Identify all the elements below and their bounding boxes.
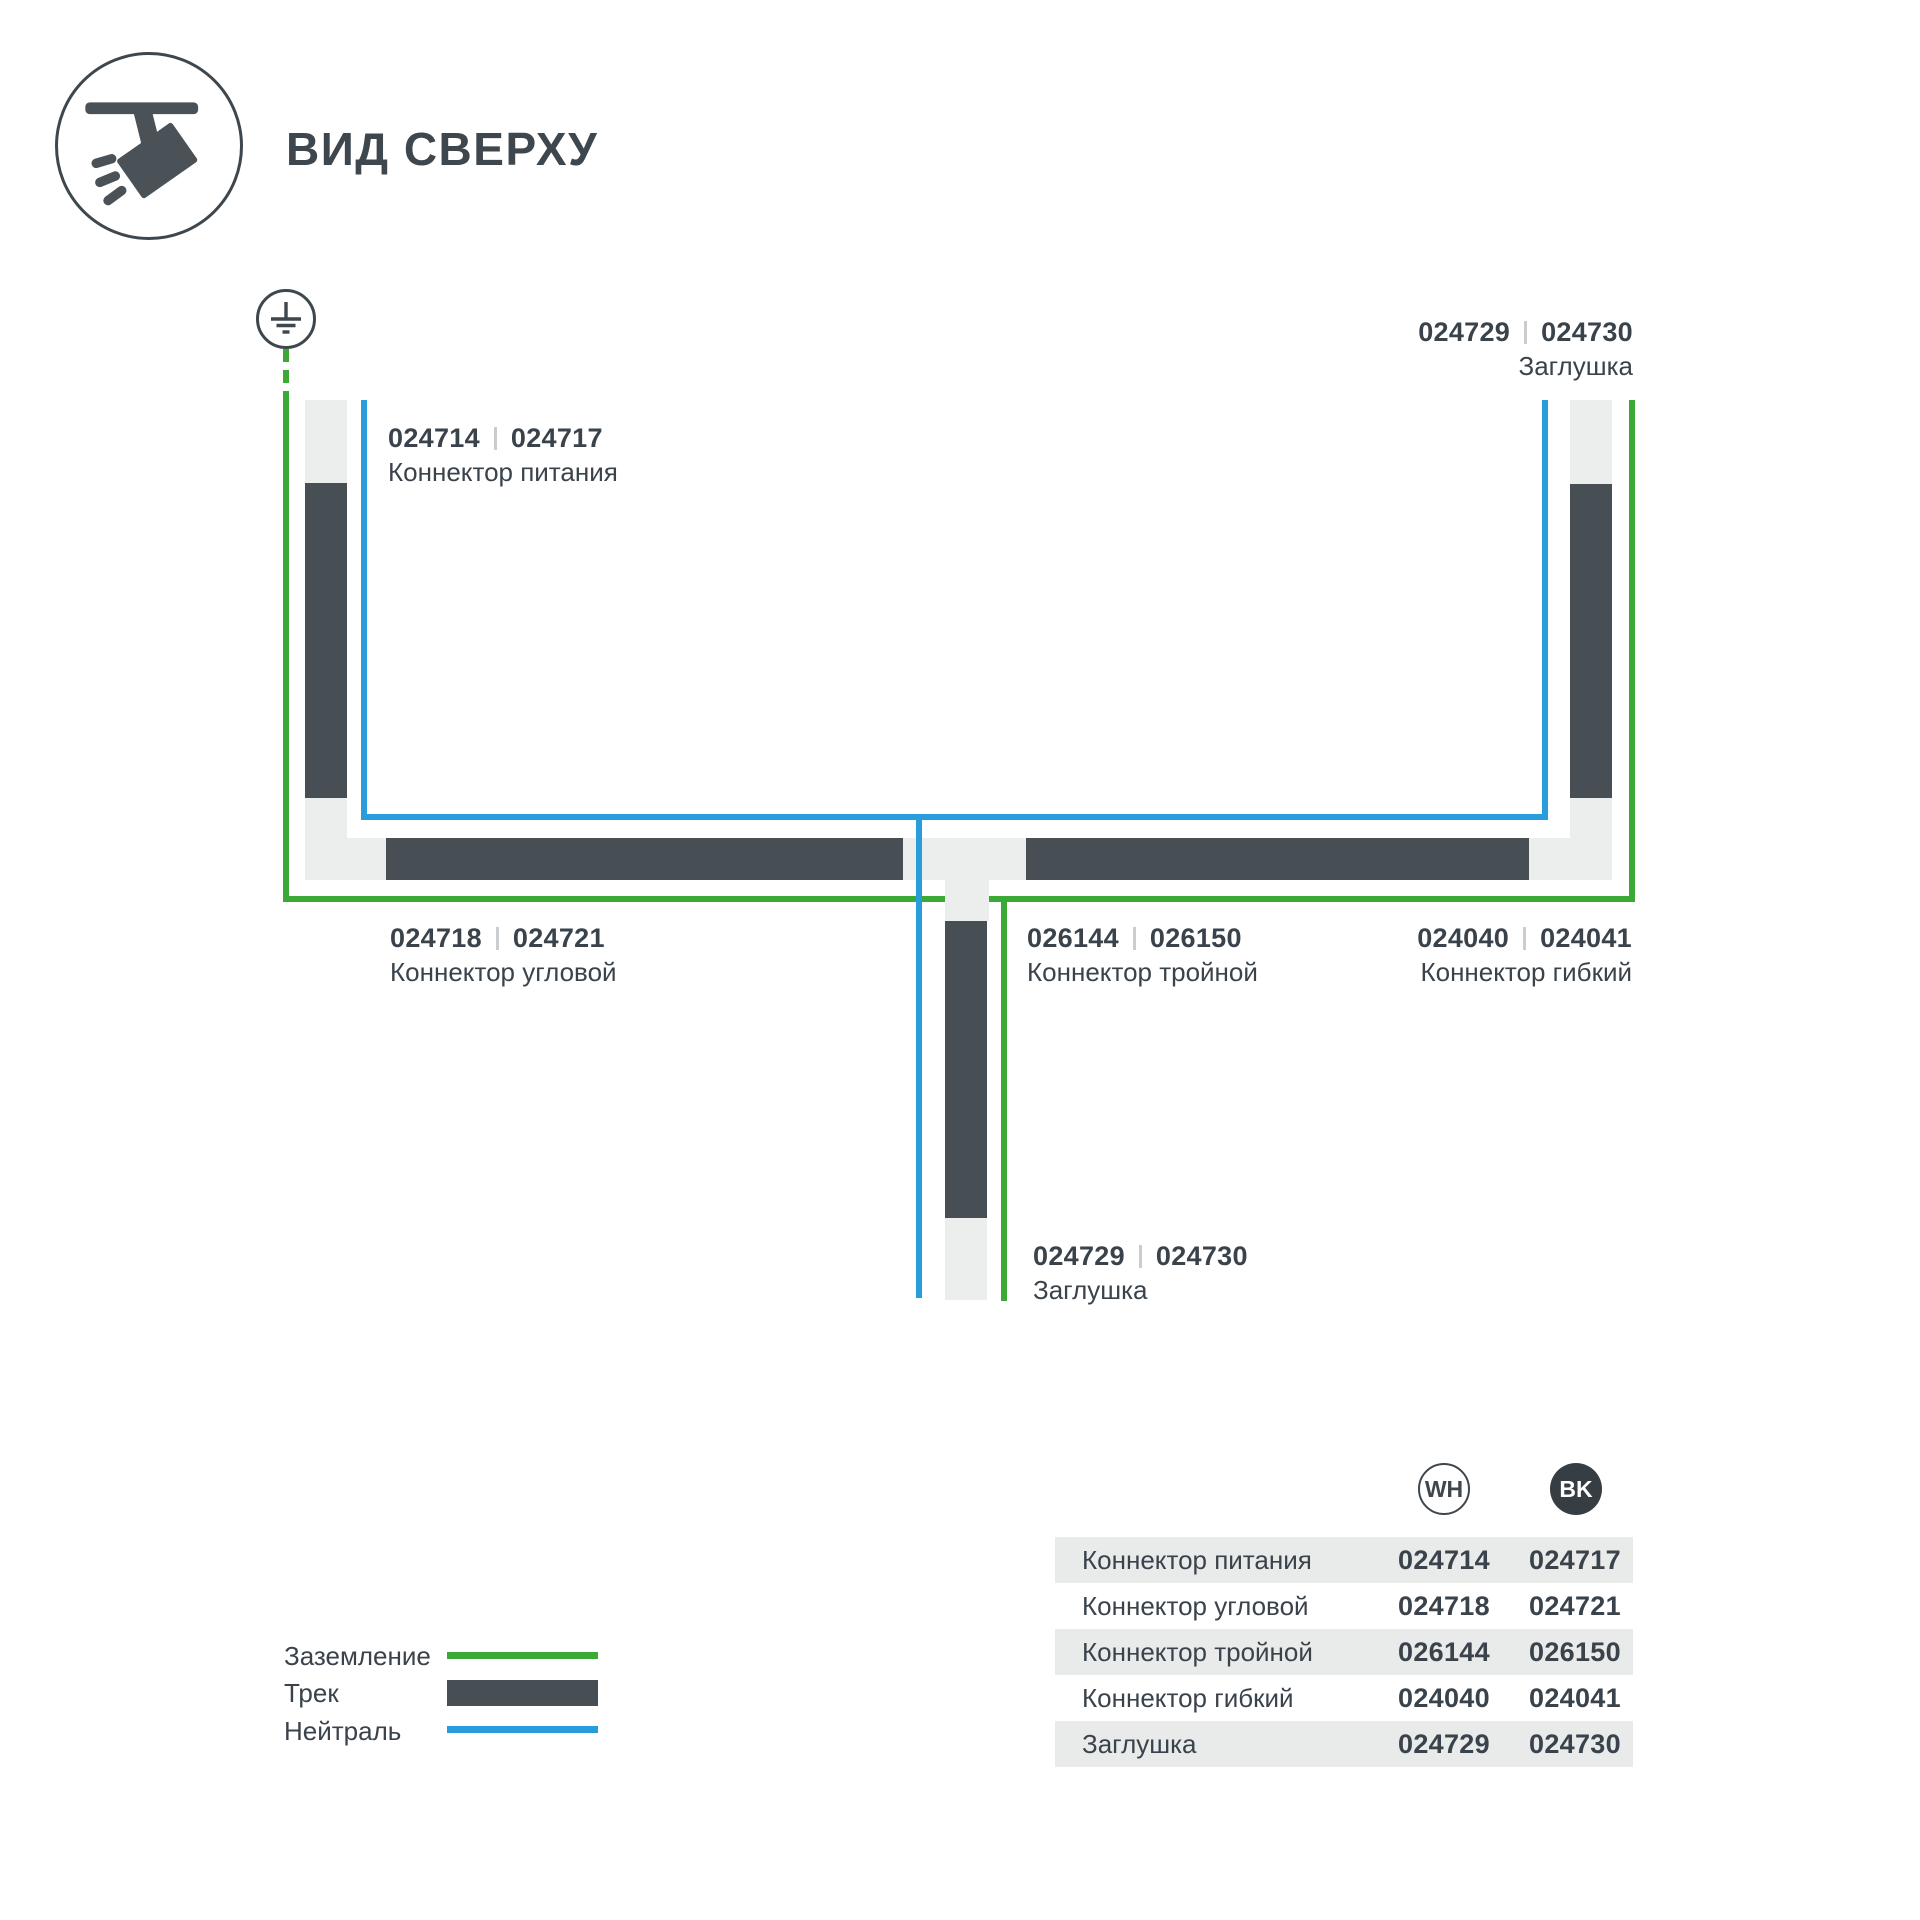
legend-ground-label: Заземление: [284, 1641, 431, 1671]
page-title: ВИД СВЕРХУ: [286, 122, 598, 176]
neutral-wire-stem-vertical: [916, 817, 922, 1298]
legend-neutral-label: Нейтраль: [284, 1716, 401, 1746]
label-power-connector: 024714 024717 Коннектор питания: [388, 422, 618, 489]
label-endcap-bottom-name: Заглушка: [1033, 1274, 1248, 1307]
separator: [1139, 1245, 1142, 1268]
separator: [1133, 927, 1136, 950]
track-segment-right-vertical: [1570, 484, 1612, 798]
separator: [1523, 927, 1526, 950]
table-row: Коннектор гибкий 024040 024041: [1055, 1675, 1633, 1721]
row-wh-code: 024729: [1389, 1729, 1499, 1760]
row-bk-code: 024730: [1520, 1729, 1630, 1760]
endcap-connector-stem-bottom: [945, 1218, 987, 1300]
neutral-wire-left-vertical: [361, 400, 367, 820]
row-name: Коннектор гибкий: [1082, 1683, 1294, 1714]
earth-ground-icon: [256, 289, 316, 349]
neutral-wire-right-vertical: [1542, 400, 1548, 820]
endcap-connector-top-left: [305, 400, 347, 483]
label-power-name: Коннектор питания: [388, 456, 618, 489]
label-flexible-connector: 024040 024041 Коннектор гибкий: [1417, 922, 1632, 989]
row-wh-code: 026144: [1389, 1637, 1499, 1668]
ground-wire-dashed: [283, 349, 289, 400]
row-bk-code: 024041: [1520, 1683, 1630, 1714]
legend-neutral-swatch: [447, 1726, 598, 1733]
row-name: Коннектор угловой: [1082, 1591, 1309, 1622]
separator: [496, 927, 499, 950]
row-name: Коннектор тройной: [1082, 1637, 1313, 1668]
table-row: Коннектор питания 024714 024717: [1055, 1537, 1633, 1583]
column-header-black: BK: [1550, 1463, 1602, 1515]
ground-wire-bottom-left: [283, 896, 945, 902]
row-name: Заглушка: [1082, 1729, 1197, 1760]
endcap-connector-top-right: [1570, 400, 1612, 484]
row-wh-code: 024714: [1389, 1545, 1499, 1576]
ground-wire-left-vertical: [283, 400, 289, 902]
label-flexible-name: Коннектор гибкий: [1417, 956, 1632, 989]
track-segment-stem-vertical: [945, 921, 987, 1218]
label-corner-numbers: 024718 024721: [390, 922, 617, 955]
track-spotlight-icon: [55, 52, 243, 240]
separator: [494, 427, 497, 450]
flexible-connector-vertical: [1570, 798, 1612, 880]
ground-wire-bottom-right: [989, 896, 1635, 902]
row-wh-code: 024718: [1389, 1591, 1499, 1622]
label-power-numbers: 024714 024717: [388, 422, 618, 455]
label-corner-connector: 024718 024721 Коннектор угловой: [390, 922, 617, 989]
row-bk-code: 024721: [1520, 1591, 1630, 1622]
label-triple-numbers: 026144 026150: [1027, 922, 1258, 955]
column-header-white: WH: [1418, 1463, 1470, 1515]
table-row: Коннектор угловой 024718 024721: [1055, 1583, 1633, 1629]
label-flexible-numbers: 024040 024041: [1417, 922, 1632, 955]
label-endcap-bottom: 024729 024730 Заглушка: [1033, 1240, 1248, 1307]
label-endcap-top: 024729 024730 Заглушка: [1418, 316, 1633, 383]
row-name: Коннектор питания: [1082, 1545, 1312, 1576]
legend-ground-swatch: [447, 1652, 598, 1659]
flexible-connector-horizontal: [1529, 838, 1570, 880]
ground-wire-stem-vertical: [1001, 896, 1007, 1301]
table-row: Заглушка 024729 024730: [1055, 1721, 1633, 1767]
neutral-wire-horizontal: [361, 814, 1548, 820]
label-corner-name: Коннектор угловой: [390, 956, 617, 989]
triple-connector-stem: [945, 880, 989, 921]
track-segment-bottom-left: [386, 838, 903, 880]
label-triple-name: Коннектор тройной: [1027, 956, 1258, 989]
ground-wire-right-vertical: [1629, 400, 1635, 902]
corner-connector-horizontal: [347, 838, 386, 880]
track-segment-left-vertical: [305, 483, 347, 798]
row-wh-code: 024040: [1389, 1683, 1499, 1714]
label-endcap-top-numbers: 024729 024730: [1418, 316, 1633, 349]
legend-track-label: Трек: [284, 1678, 339, 1708]
track-segment-bottom-right: [1026, 838, 1529, 880]
row-bk-code: 026150: [1520, 1637, 1630, 1668]
table-row: Коннектор тройной 026144 026150: [1055, 1629, 1633, 1675]
label-endcap-bottom-numbers: 024729 024730: [1033, 1240, 1248, 1273]
label-triple-connector: 026144 026150 Коннектор тройной: [1027, 922, 1258, 989]
label-endcap-top-name: Заглушка: [1418, 350, 1633, 383]
page: ВИД СВЕРХУ 024714 024717: [0, 0, 1920, 1920]
row-bk-code: 024717: [1520, 1545, 1630, 1576]
corner-connector-vertical: [305, 798, 347, 880]
separator: [1524, 321, 1527, 344]
legend-track-swatch: [447, 1680, 598, 1706]
